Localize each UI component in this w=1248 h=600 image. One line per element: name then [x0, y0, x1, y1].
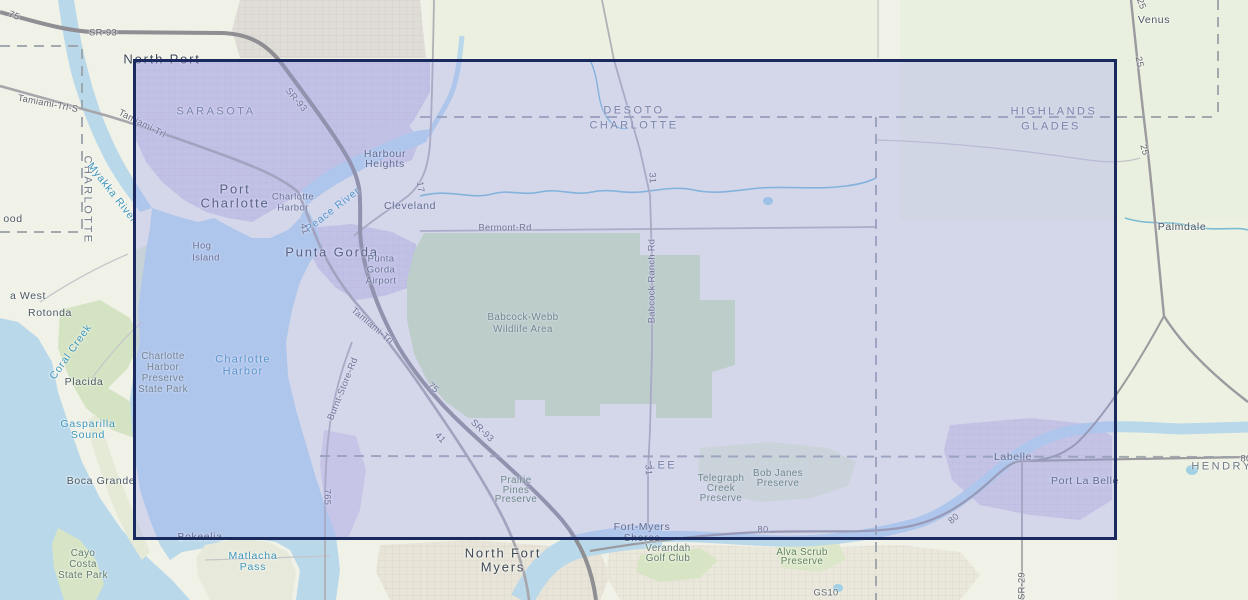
- road-776: [40, 254, 128, 302]
- boundary-sarasota: [0, 46, 82, 232]
- map-viewport: SARASOTADESOTOCHARLOTTEHIGHLANDSGLADESCH…: [0, 0, 1248, 600]
- selection-rectangle[interactable]: [133, 59, 1117, 540]
